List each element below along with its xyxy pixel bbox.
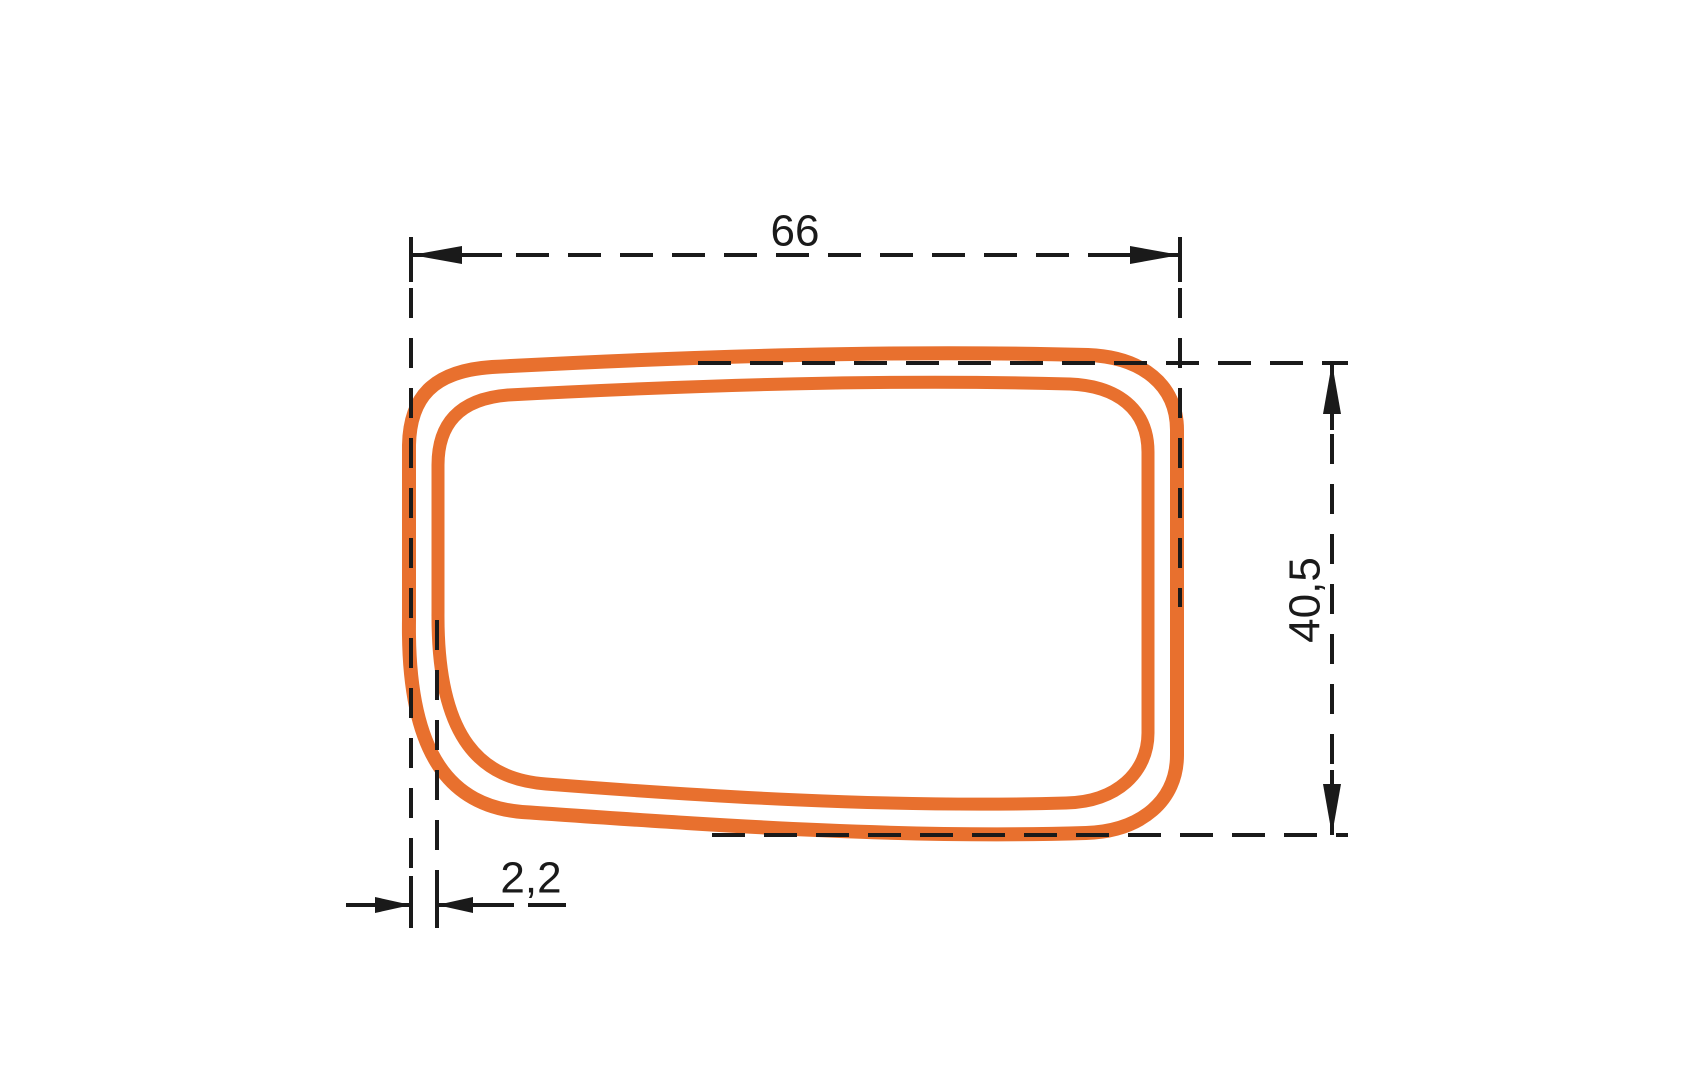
thickness-dimension-label: 2,2 <box>500 854 561 903</box>
technical-drawing-page: 66 40,5 2,2 <box>0 0 1700 1067</box>
background <box>0 0 1700 1067</box>
technical-drawing-canvas: 66 40,5 2,2 <box>0 0 1700 1067</box>
height-dimension-label: 40,5 <box>1281 557 1330 643</box>
width-dimension-label: 66 <box>771 207 820 256</box>
